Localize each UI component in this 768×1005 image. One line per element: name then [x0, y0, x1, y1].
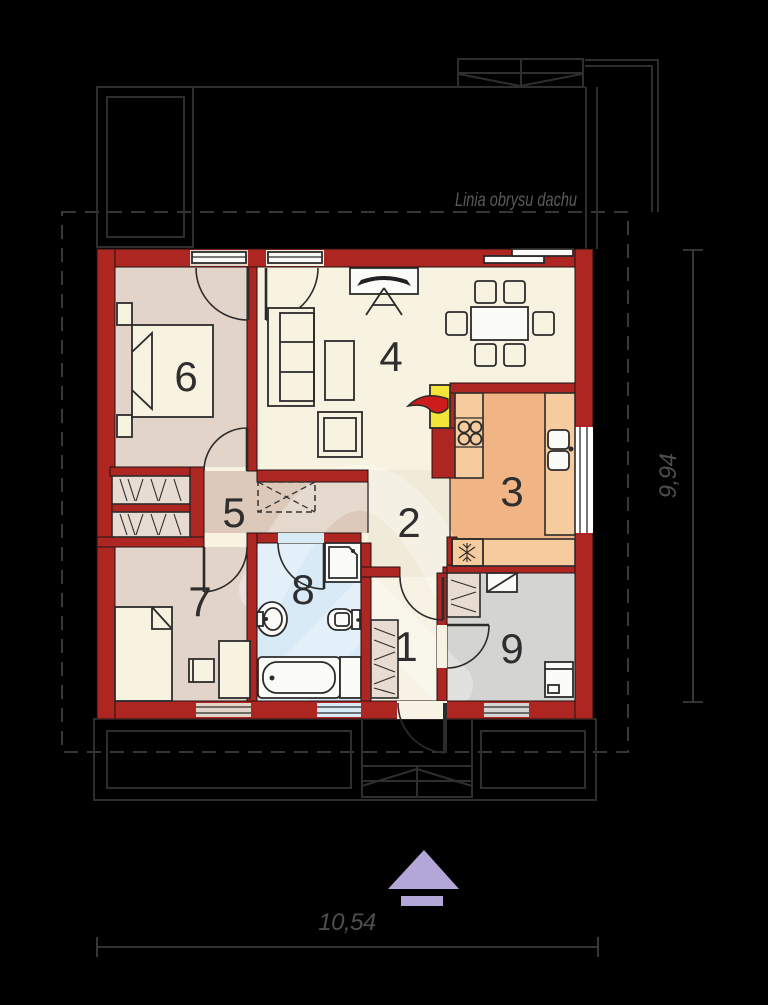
desk	[219, 641, 250, 698]
dining-chair-bottom-right	[504, 344, 525, 366]
bed7-outline	[115, 607, 172, 701]
chimney-diagonal-left	[459, 74, 520, 86]
entrance-door-slot	[397, 701, 447, 719]
steps-diagonal-right	[417, 769, 472, 786]
bed6-outline	[132, 325, 213, 417]
bedroom7-window-slot	[196, 703, 251, 717]
sink-basin-2	[548, 451, 569, 470]
steps-diagonal-left	[362, 769, 417, 786]
chimney	[458, 59, 583, 87]
tv-stand	[350, 268, 418, 294]
kitchen-window-slot	[575, 427, 593, 533]
utility-window	[484, 703, 529, 717]
bottom-terrace-right	[481, 731, 585, 788]
wall-room6-bottom	[110, 467, 190, 476]
entrance-arrow	[388, 850, 459, 906]
shower-drain	[351, 549, 355, 553]
corridor-wardrobe	[447, 573, 480, 617]
shower	[325, 543, 361, 582]
top-left-terrace-outer	[97, 87, 193, 247]
basin-tap	[264, 617, 268, 621]
arrow-base-bar	[401, 896, 443, 906]
room-label-5: 5	[222, 489, 245, 536]
dining-window-pane-2	[512, 249, 573, 256]
wall-corridor-entry-left	[361, 567, 400, 577]
bathroom-window-slot	[317, 703, 361, 717]
sink-faucet	[569, 447, 574, 452]
room-label-9: 9	[500, 625, 523, 672]
dining-window-pane-1	[484, 256, 544, 263]
floor-plan-canvas: 1 2 3 4 5 6 7 8 9 Linia obrysu dachu 10,…	[0, 0, 768, 1005]
arrow-up-icon	[388, 850, 459, 889]
wall-wardrobe-divider	[112, 504, 190, 512]
side-table	[325, 341, 354, 400]
toilet-button	[356, 618, 360, 622]
dining-chair-top-right	[504, 281, 525, 303]
sink-basin-1	[548, 430, 569, 449]
tub-drain	[270, 676, 275, 681]
sofa-outline	[268, 308, 314, 406]
dining-chair-bottom-left	[475, 344, 496, 366]
room-label-3: 3	[500, 468, 523, 515]
room-label-1: 1	[394, 623, 417, 670]
tub-shelf	[340, 657, 361, 698]
chimney-diagonal-right	[520, 74, 582, 86]
utility-window-slot	[484, 703, 529, 717]
washbasin	[257, 602, 287, 636]
room-label-8: 8	[291, 566, 314, 613]
wall-below-boiler	[432, 428, 455, 478]
bathtub	[258, 657, 361, 698]
bottom-terrace-left	[107, 731, 351, 788]
room-label-7: 7	[188, 578, 211, 625]
bathroom-window	[317, 703, 361, 717]
room-label-2: 2	[397, 499, 420, 546]
counter-bottom-strip	[452, 539, 575, 566]
wall-stub-hallway	[190, 467, 204, 543]
nightstand-bottom	[117, 415, 132, 437]
wall-living-hallway	[257, 470, 368, 482]
roof-edge-bracket	[585, 60, 658, 212]
height-dim-label: 9,94	[655, 453, 682, 498]
dining-chair-right	[533, 312, 554, 335]
shower-tray	[325, 543, 361, 582]
bedroom7-window	[196, 703, 251, 717]
wall-kitchen-top	[450, 383, 575, 393]
dining-table	[471, 307, 528, 340]
top-left-terrace-inner	[107, 97, 184, 237]
wall-room7-top	[97, 537, 204, 547]
height-dimension: 9,94	[655, 250, 703, 702]
dining-chair-left	[446, 312, 467, 335]
width-dim-label: 10,54	[318, 909, 376, 936]
roof-outline-label: Linia obrysu dachu	[455, 190, 577, 211]
width-dimension: 10,54	[97, 909, 598, 957]
washing-machine	[545, 662, 573, 697]
bottom-terrace	[94, 719, 596, 800]
door8-slot	[278, 533, 324, 543]
kitchen-window	[575, 427, 593, 533]
entrance-door	[397, 701, 447, 753]
entry-steps	[362, 766, 472, 797]
floor-plan-drawing: 1 2 3 4 5 6 7 8 9 Linia obrysu dachu 10,…	[0, 0, 768, 1005]
room-label-6: 6	[174, 353, 197, 400]
nightstand-top	[117, 303, 132, 325]
room-label-4: 4	[379, 333, 402, 380]
door9-slot	[437, 625, 447, 668]
corridor-wardrobe-cell	[447, 573, 480, 617]
dining-chair-top-left	[475, 281, 496, 303]
toilet	[328, 609, 360, 630]
basin-bracket	[257, 612, 263, 626]
